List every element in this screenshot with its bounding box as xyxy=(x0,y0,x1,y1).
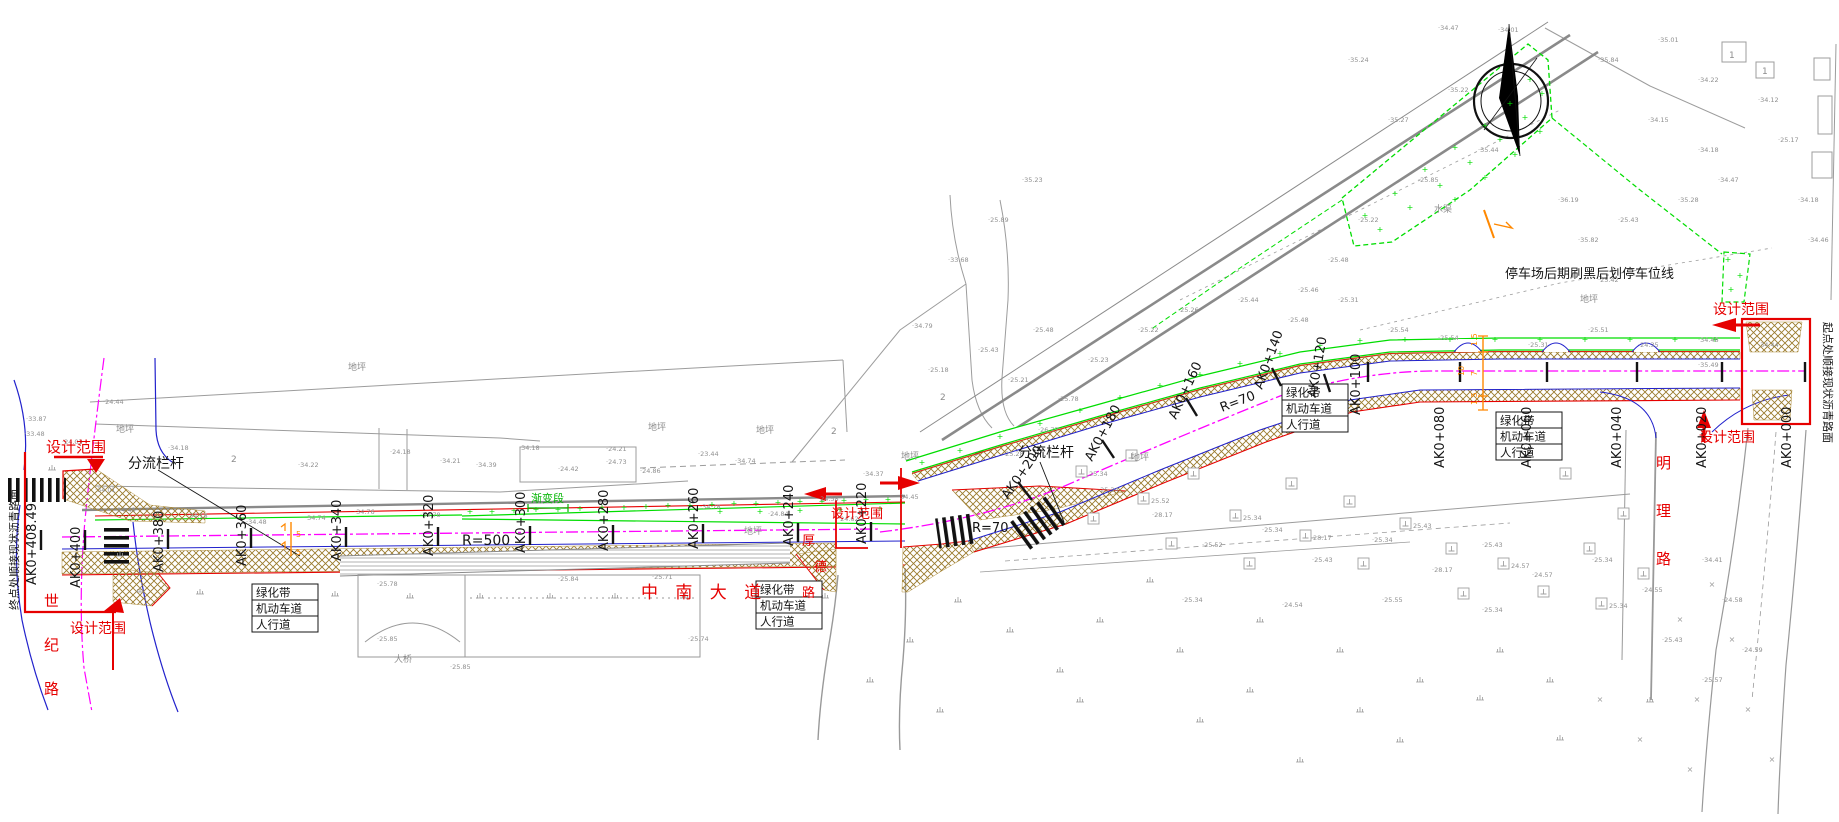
elevation-label: ·24.58 xyxy=(818,495,839,503)
gray-label: 地坪 xyxy=(1580,293,1598,305)
station-label: AK0+340 xyxy=(330,500,345,561)
end-point-note: 终点处顺接现状沥青路面 xyxy=(7,489,21,610)
elevation-label: ·34.21 xyxy=(440,457,461,465)
elevation-label: ·34.39 xyxy=(476,461,497,469)
elevation-label: ·25.78 xyxy=(377,580,398,588)
road-name-zhongnan-avenue: 中 南 大 道 xyxy=(641,583,767,603)
planting-plus-icon: + xyxy=(841,496,848,505)
planting-plus-icon: + xyxy=(1522,113,1529,122)
elevation-label: ·24.59 xyxy=(1742,646,1763,654)
elevation-label: ·25.89 xyxy=(988,216,1009,224)
planting-plus-icon: + xyxy=(1537,127,1544,136)
grass-mark-icon xyxy=(476,593,484,598)
elevation-label: ·24.55 xyxy=(1642,586,1663,594)
elevation-label: ·25.22 xyxy=(1138,326,1159,334)
elevation-label: ·25.43 xyxy=(1618,216,1639,224)
road-name-mingli: 明 xyxy=(1656,454,1671,472)
elevation-label: ·25.52 xyxy=(1202,541,1223,549)
elevation-label: ·25.18 xyxy=(928,366,949,374)
station-label: AK0+400 xyxy=(69,527,84,588)
gray-label: 2 xyxy=(940,393,946,403)
planting-plus-icon: + xyxy=(1527,75,1534,84)
design-scope-arrow xyxy=(1712,318,1736,332)
elevation-label: ·33.68 xyxy=(948,256,969,264)
elevation-label: ·24.48 xyxy=(115,506,136,514)
cross-mark-icon: × xyxy=(1745,705,1752,714)
grass-mark-icon xyxy=(406,593,414,598)
elevation-label: ·25.55 xyxy=(1382,596,1403,604)
elevation-label: ·34.15 xyxy=(1648,116,1669,124)
survey-elevation-label: 28.17 xyxy=(1313,534,1332,542)
road-name-mingli: 理 xyxy=(1656,502,1671,520)
elevation-label: ·25.54 xyxy=(1388,326,1409,334)
elevation-label: ·24.44 xyxy=(103,398,124,406)
grass-mark-icon xyxy=(48,465,56,470)
planting-plus-icon: + xyxy=(1377,225,1384,234)
elevation-label: ·25.34 xyxy=(1372,536,1393,544)
elevation-label: ·25.21 xyxy=(1008,376,1029,384)
planting-plus-icon: + xyxy=(1482,173,1489,182)
gray-label: 1 xyxy=(1729,51,1735,61)
planting-plus-icon: + xyxy=(1582,335,1589,344)
grass-mark-icon xyxy=(1256,617,1264,622)
grass-mark-icon xyxy=(1336,647,1344,652)
grass-mark-icon xyxy=(1096,617,1104,622)
planting-plus-icon: + xyxy=(665,501,672,510)
parking-note-label: 停车场后期刷黑后划停车位线 xyxy=(1505,266,1674,282)
planting-plus-icon: + xyxy=(775,498,782,507)
grass-mark-icon xyxy=(1416,677,1424,682)
lane-label-boxes-layer: 绿化带机动车道人行道绿化带机动车道人行道绿化带机动车道人行道绿化带机动车道人行道 xyxy=(252,384,1562,632)
elevation-label: ·34.18 xyxy=(168,444,189,452)
grass-mark-icon xyxy=(1396,737,1404,742)
elevation-label: ·25.85 xyxy=(377,635,398,643)
road-name-shiji: 世 xyxy=(44,592,59,610)
grass-mark-icon xyxy=(1546,677,1554,682)
elevation-label: ·25.43 xyxy=(978,346,999,354)
elevation-label: ·35.44 xyxy=(1478,146,1499,154)
planting-plus-icon: + xyxy=(1452,195,1459,204)
planting-plus-icon: + xyxy=(1492,335,1499,344)
elevation-label: ·35.49 xyxy=(1698,361,1719,369)
elevation-label: ·35.27 xyxy=(1388,116,1409,124)
gray-label: 大桥 xyxy=(394,653,412,665)
survey-elevation-label: 25.34 xyxy=(1243,514,1262,522)
station-label: AK0+040 xyxy=(1610,407,1625,468)
elevation-label: ·24.58 xyxy=(1722,596,1743,604)
elevation-label: ·28.17 xyxy=(1432,566,1453,574)
elevation-label: ·36.19 xyxy=(1558,196,1579,204)
elevation-label: ·35.23 xyxy=(1022,176,1043,184)
station-label: AK0+240 xyxy=(782,485,797,546)
survey-elevation-label: 25.34 xyxy=(1089,470,1108,478)
planting-plus-icon: + xyxy=(1237,359,1244,368)
road-name-houde: 路 xyxy=(802,585,815,601)
signal-label: 5 xyxy=(296,548,301,557)
station-label: AK0+360 xyxy=(235,505,250,566)
road-name-shiji: 路 xyxy=(44,680,59,698)
elevation-label: ·25.54 xyxy=(1438,334,1459,342)
elevation-label: ·24.21 xyxy=(606,445,627,453)
survey-elevation-label: 25.52 xyxy=(1151,497,1170,505)
plan-canvas: ×××××××××+++++++++++++++++++++++++++++++… xyxy=(0,0,1839,822)
planting-plus-icon: + xyxy=(1407,203,1414,212)
grass-mark-icon xyxy=(954,597,962,602)
elevation-label: ·35.84 xyxy=(1598,56,1619,64)
grass-mark-icon xyxy=(1476,695,1484,700)
grass-mark-icon xyxy=(1076,697,1084,702)
grass-mark-icon xyxy=(1006,627,1014,632)
station-label: AK0+060 xyxy=(1520,407,1535,468)
planting-plus-icon: + xyxy=(797,497,804,506)
elevation-label: ·35.24 xyxy=(1348,56,1369,64)
transition-section-label: 渐变段 xyxy=(531,491,564,505)
planting-plus-icon: + xyxy=(1627,335,1634,344)
elevation-label: ·24.73 xyxy=(606,458,627,466)
elevation-label: ·25.34 xyxy=(1098,486,1119,494)
start-point-note: 起点处顺接现状沥青路面 xyxy=(1821,322,1835,443)
diversion-railing-label: 分流栏杆 xyxy=(128,456,184,472)
lane-box-label: 人行道 xyxy=(1286,418,1321,432)
grass-mark-icon xyxy=(1296,757,1304,762)
planting-plus-icon: + xyxy=(1737,271,1744,280)
gray-label: 地坪 xyxy=(744,525,762,537)
planting-plus-icon: + xyxy=(577,504,584,513)
elevation-label: ·34.22 xyxy=(298,461,319,469)
elevation-label: ·25.48 xyxy=(1288,316,1309,324)
lane-box-label: 机动车道 xyxy=(256,602,302,616)
planting-plus-icon: + xyxy=(467,507,474,516)
cross-mark-icon: × xyxy=(1729,635,1736,644)
planting-plus-icon: + xyxy=(997,432,1004,441)
elevation-label: ·25.34 xyxy=(1182,596,1203,604)
grass-mark-icon xyxy=(936,707,944,712)
elevation-label: ·25.85 xyxy=(1418,176,1439,184)
elevation-label: ·34.12 xyxy=(1758,96,1779,104)
planting-plus-icon: + xyxy=(1507,99,1514,108)
station-label: AK0+380 xyxy=(152,511,167,572)
gray-label: 地坪 xyxy=(1131,451,1149,463)
road-name-shiji: 纪 xyxy=(44,636,59,654)
cross-mark-icon: × xyxy=(1677,615,1684,624)
dimension-label: 1.5 xyxy=(1470,333,1479,346)
cross-mark-icon: × xyxy=(1637,735,1644,744)
grass-mark-icon xyxy=(1196,717,1204,722)
elevation-label: ·34.18 xyxy=(519,444,540,452)
elevation-label: ·24.18 xyxy=(390,448,411,456)
elevation-label: ·33.48 xyxy=(24,430,45,438)
elevation-label: ·24.54 xyxy=(1282,601,1303,609)
station-label: AK0+408.49 xyxy=(25,503,40,585)
elevation-label: ·34.18 xyxy=(1698,146,1719,154)
elevation-label: ·25.78 xyxy=(1058,395,1079,403)
planting-plus-icon: + xyxy=(621,503,628,512)
planting-plus-icon: + xyxy=(1357,336,1364,345)
elevation-label: ·25.31 xyxy=(1338,296,1359,304)
station-label: AK0+080 xyxy=(1433,407,1448,468)
crosswalk xyxy=(104,528,129,568)
planting-plus-icon: + xyxy=(885,495,892,504)
planting-plus-icon: + xyxy=(555,505,562,514)
planting-plus-icon: + xyxy=(1725,255,1732,264)
gray-label: 地坪 xyxy=(756,424,774,436)
elevation-label: ·23.44 xyxy=(698,450,719,458)
elevation-label: ·25.22 xyxy=(1358,216,1379,224)
grass-mark-icon xyxy=(1176,647,1184,652)
planting-plus-icon: + xyxy=(489,507,496,516)
elevation-label: ·26.77 xyxy=(1038,426,1059,434)
elevation-label: ·34.45 xyxy=(898,493,919,501)
elevation-label: ·25.84 xyxy=(558,575,579,583)
grass-mark-icon xyxy=(1356,707,1364,712)
planting-plus-icon: + xyxy=(1402,335,1409,344)
station-label: AK0+280 xyxy=(597,490,612,551)
gray-label: 2 xyxy=(231,455,237,465)
elevation-label: ·25.71 xyxy=(652,573,673,581)
grass-mark-icon xyxy=(1056,667,1064,672)
grass-mark-icon xyxy=(331,591,339,596)
planting-plus-icon: + xyxy=(1728,285,1735,294)
grass-mark-icon xyxy=(546,593,554,598)
elevation-label: ·25.43 xyxy=(1662,636,1683,644)
elevation-label: ·34.74 xyxy=(735,457,756,465)
planting-plus-icon: + xyxy=(643,502,650,511)
elevation-label: ·28.17 xyxy=(1152,511,1173,519)
elevation-label: ·25.43 xyxy=(1312,556,1333,564)
station-label: AK0+320 xyxy=(422,495,437,556)
elevation-label: ·25.57 xyxy=(1702,676,1723,684)
gray-label: 地坪 xyxy=(348,361,366,373)
houde-road xyxy=(818,568,906,750)
elevation-label: ·35.01 xyxy=(1658,36,1679,44)
elevation-label: ·34.01 xyxy=(1498,26,1519,34)
lane-box-label: 绿化带 xyxy=(256,586,291,600)
road-name-houde: 德 xyxy=(814,560,827,575)
design-scope-label: 设计范围 xyxy=(46,438,106,456)
elevation-label: ·24.86 xyxy=(640,467,661,475)
elevation-label: ·34.37 xyxy=(863,470,884,478)
signal-label: 5 xyxy=(296,530,301,539)
elevation-label: ·25.46 xyxy=(1298,286,1319,294)
elevation-label: ·24.35 xyxy=(1638,341,1659,349)
radius-label: R=70 xyxy=(1218,389,1257,416)
orange-arrow xyxy=(1494,222,1512,228)
grass-mark-icon xyxy=(1556,735,1564,740)
cross-mark-icon: × xyxy=(1687,765,1694,774)
south-road-right xyxy=(1702,428,1806,814)
elevation-label: ·34.44 xyxy=(1758,341,1779,349)
planting-plus-icon: + xyxy=(1117,393,1124,402)
elevation-label: ·25.51 xyxy=(1588,326,1609,334)
road-name-houde: 厚 xyxy=(802,534,815,549)
grass-mark-icon xyxy=(1496,647,1504,652)
planting-plus-icon: + xyxy=(797,506,804,515)
grass-mark-icon xyxy=(1146,577,1154,582)
crosswalk xyxy=(935,514,975,549)
elevation-label: ·35.82 xyxy=(1578,236,1599,244)
radius-label: R=70 xyxy=(972,521,1008,536)
elevation-label: ·25.48 xyxy=(1033,326,1054,334)
elevation-label: ·34.79 xyxy=(912,322,933,330)
planting-plus-icon: + xyxy=(1512,150,1519,159)
survey-elevation-label: 24.57 xyxy=(1511,562,1530,570)
planting-plus-icon: + xyxy=(1452,143,1459,152)
elevation-label: ·25.43 xyxy=(1482,541,1503,549)
lane-box-label: 人行道 xyxy=(256,618,291,632)
grass-mark-icon xyxy=(196,589,204,594)
dimension-label: 10 xyxy=(1457,366,1466,376)
planting-plus-icon: + xyxy=(1539,89,1546,98)
lane-box-label: 人行道 xyxy=(760,615,795,629)
planting-plus-icon: + xyxy=(1497,135,1504,144)
design-scope-label: 设计范围 xyxy=(70,620,126,637)
station-label: AK0+300 xyxy=(514,492,529,553)
elevation-label: ·34.47 xyxy=(1718,176,1739,184)
elevation-label: ·25.26 xyxy=(1178,306,1199,314)
planting-plus-icon: + xyxy=(731,499,738,508)
elevation-label: ·33.87 xyxy=(26,415,47,423)
planting-plus-icon: + xyxy=(1157,381,1164,390)
elevation-label: ·25.17 xyxy=(1778,136,1799,144)
elevation-label: ·25.85 xyxy=(450,663,471,671)
lane-box-label: 机动车道 xyxy=(1286,402,1332,416)
cross-mark-icon: × xyxy=(1769,755,1776,764)
station-label: AK0+260 xyxy=(687,488,702,549)
elevation-label: ·25.34 xyxy=(1262,526,1283,534)
elevation-label: ·34.74 xyxy=(305,514,326,522)
elevation-label: ·34.01 xyxy=(95,486,116,494)
elevation-label: ·35.22 xyxy=(1448,86,1469,94)
road-name-mingli: 路 xyxy=(1656,550,1671,568)
elevation-label: ·34.18 xyxy=(187,512,208,520)
planting-plus-icon: + xyxy=(1077,406,1084,415)
station-label: AK0+000 xyxy=(1780,407,1795,468)
planting-plus-icon: + xyxy=(1672,335,1679,344)
elevation-label: ·25.48 xyxy=(1328,256,1349,264)
cross-mark-icon: × xyxy=(1694,695,1701,704)
planting-plus-icon: + xyxy=(919,458,926,467)
planting-plus-icon: + xyxy=(533,505,540,514)
elevation-label: ·25.34 xyxy=(1482,606,1503,614)
road-plan-drawing: ×××××××××+++++++++++++++++++++++++++++++… xyxy=(0,0,1839,822)
gray-label: 地坪 xyxy=(648,421,666,433)
station-tick xyxy=(1102,440,1114,458)
grass-mark-icon xyxy=(906,637,914,642)
cross-mark-icon: × xyxy=(1597,695,1604,704)
dimension-label: 1.5 xyxy=(1470,392,1479,405)
elevation-label: ·34.76 xyxy=(354,508,375,516)
gray-label: 地坪 xyxy=(116,423,134,435)
elevation-label: ·35.28 xyxy=(1678,196,1699,204)
diversion-railing-label: 分流栏杆 xyxy=(1018,445,1074,461)
dimension-label: 7 xyxy=(1470,371,1479,376)
elevation-label: ·25.31 xyxy=(1528,341,1549,349)
radius-label: R=500 xyxy=(462,533,510,549)
cross-mark-icon: × xyxy=(1709,580,1716,589)
elevation-label: ·34.48 xyxy=(1698,336,1719,344)
planting-plus-icon: + xyxy=(1467,158,1474,167)
grass-mark-icon xyxy=(866,677,874,682)
elevation-label: ·25.74 xyxy=(688,635,709,643)
elevation-label: ·34.47 xyxy=(1438,24,1459,32)
elevation-label: ·25.44 xyxy=(1238,296,1259,304)
gray-label: 1 xyxy=(1762,67,1768,77)
design-scope-label: 设计范围 xyxy=(1699,429,1755,446)
elevation-label: ·34.46 xyxy=(1808,236,1829,244)
grass-mark-icon xyxy=(611,593,619,598)
survey-elevation-label: 25.34 xyxy=(1609,602,1628,610)
gray-label: 2 xyxy=(831,427,837,437)
planting-plus-icon: + xyxy=(1482,121,1489,130)
elevation-label: ·24.57 xyxy=(1532,571,1553,579)
planting-plus-icon: + xyxy=(757,507,764,516)
elevation-label: ·24.42 xyxy=(558,465,579,473)
station-tick xyxy=(1186,398,1197,416)
planting-plus-icon: + xyxy=(957,446,964,455)
elevation-label: ·25.34 xyxy=(1592,556,1613,564)
elevation-label: ·34.41 xyxy=(1702,556,1723,564)
gray-label: 地坪 xyxy=(901,450,919,462)
elevation-label: ·34.78 xyxy=(700,503,721,511)
design-scope-label: 设计范围 xyxy=(831,507,883,522)
station-label: AK0+100 xyxy=(1349,354,1364,415)
design-scope-label: 设计范围 xyxy=(1713,301,1769,318)
gray-label: 水渠 xyxy=(1434,203,1452,215)
planting-plus-icon: + xyxy=(1392,189,1399,198)
survey-elevation-label: 25.43 xyxy=(1413,522,1432,530)
elevation-label: ·34.22 xyxy=(1698,76,1719,84)
mingli-road xyxy=(1622,430,1656,700)
elevation-label: ·34.18 xyxy=(1798,196,1819,204)
grass-mark-icon xyxy=(1646,697,1654,702)
elevation-label: ·25.23 xyxy=(1088,356,1109,364)
grass-mark-icon xyxy=(1246,687,1254,692)
planting-plus-icon: + xyxy=(1422,165,1429,174)
